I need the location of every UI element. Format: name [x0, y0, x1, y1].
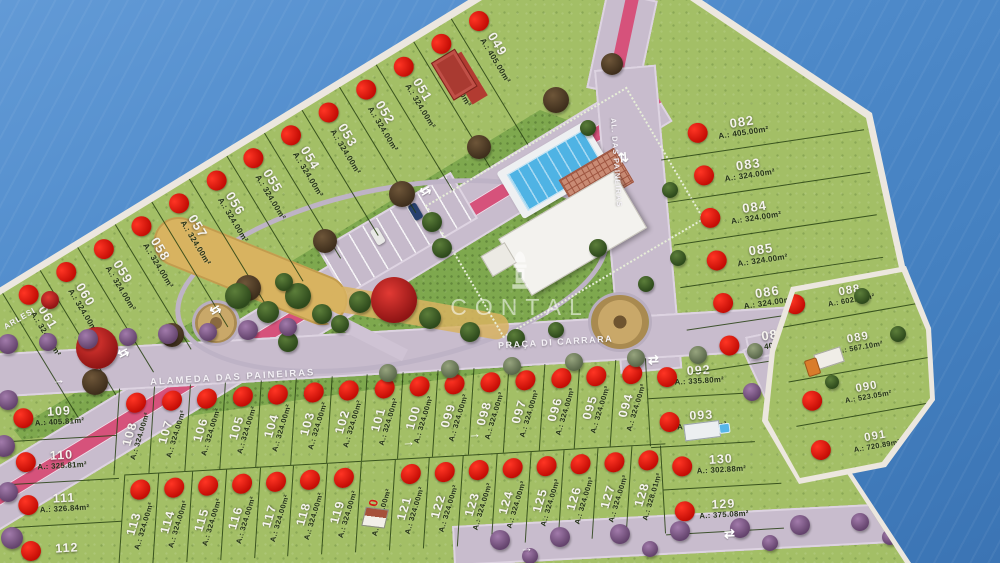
tree-icon [662, 182, 678, 198]
sold-marker-dot [130, 479, 151, 500]
sold-marker-dot [621, 363, 642, 384]
tree-icon [670, 521, 690, 541]
lot-label: 130A.: 302.88m² [696, 452, 747, 476]
tree-icon [1, 527, 23, 549]
tree-icon [41, 291, 59, 309]
sold-marker-dot [465, 8, 492, 35]
house-car-icon [361, 507, 389, 529]
lot-106: 106A.: 324.00m² [184, 383, 225, 472]
sold-marker-dot [240, 144, 267, 171]
tree-icon [743, 383, 761, 401]
road-arrow-icon: → [520, 540, 534, 556]
sold-marker-dot [232, 473, 253, 494]
sold-marker-dot [198, 475, 219, 496]
lot-label: 099A.: 324.00m² [436, 391, 471, 442]
lot-area: A.: 567.10m² [836, 340, 884, 356]
sold-marker-dot [203, 167, 230, 194]
lot-label: 083A.: 324.00m² [722, 154, 775, 183]
lot-label: 117A.: 324.00m² [256, 491, 291, 542]
lot-label: 112 [55, 542, 79, 556]
lot-105: 105A.: 324.00m² [220, 381, 261, 470]
sold-marker-dot [801, 389, 824, 412]
sold-marker-dot [13, 408, 34, 429]
lot-label: 109A.: 405.81m² [34, 404, 85, 428]
sold-marker-dot [164, 477, 185, 498]
tree-icon [670, 250, 686, 266]
tree-icon [379, 364, 397, 382]
tree-icon [747, 343, 763, 359]
road-arrow-icon: → [51, 371, 65, 387]
sold-marker-dot [161, 390, 182, 411]
lot-label: 106A.: 324.00m² [188, 405, 223, 456]
lot-label: 097A.: 324.00m² [506, 387, 541, 438]
tree-icon [257, 301, 279, 323]
lot-094: 094A.: 324.00m² [609, 358, 650, 447]
lot-093: 093A.: 344.56m² [648, 393, 755, 448]
lot-area: A.: 325.81m² [37, 461, 87, 472]
lot-099: 099A.: 324.00m² [432, 368, 473, 457]
lot-label: 108A.: 324.00m² [117, 410, 152, 461]
sold-marker-dot [502, 458, 523, 479]
sold-marker-dot [333, 467, 354, 488]
house-pool-icon [683, 420, 721, 441]
lot-128: 128A.: 328.01m² [626, 444, 666, 536]
lot-label: 118A.: 324.00m² [290, 489, 325, 540]
lot-area: A.: 405.81m² [35, 417, 85, 428]
tree-icon [762, 535, 778, 551]
sold-marker-dot [265, 471, 286, 492]
sold-marker-dot [303, 382, 324, 403]
sold-marker-dot [18, 495, 39, 516]
sold-marker-dot [809, 438, 832, 461]
lot-area: A.: 324.00m² [737, 253, 788, 269]
lot-number: 112 [55, 542, 79, 556]
road-arrow-icon: → [402, 434, 416, 450]
sold-marker-dot [586, 366, 607, 387]
sold-marker-dot [674, 501, 695, 522]
lot-label: 119A.: 324.00m² [324, 487, 359, 538]
tree-icon [851, 513, 869, 531]
sold-marker-dot [409, 376, 430, 397]
road-arrow-icon: → [468, 426, 482, 442]
sold-marker-dot [551, 368, 572, 389]
lot-label: 116A.: 324.00m² [223, 493, 258, 544]
lot-label: 095A.: 324.00m² [577, 383, 612, 434]
lot-area: A.: 335.80m² [674, 376, 724, 387]
sold-marker-dot [267, 384, 288, 405]
sold-marker-dot [672, 456, 693, 477]
lot-097: 097A.: 324.00m² [503, 364, 544, 453]
tree-icon [389, 181, 415, 207]
tree-icon [279, 318, 297, 336]
lot-103: 103A.: 324.00m² [291, 376, 332, 465]
road-arrow-icon: ⇄ [648, 352, 660, 369]
tree-icon [39, 333, 57, 351]
sold-marker-dot [338, 380, 359, 401]
lot-label: 090A.: 523.05m² [842, 377, 892, 405]
lot-102: 102A.: 324.00m² [326, 374, 367, 463]
tree-icon [550, 527, 570, 547]
house-truck-icon [813, 346, 845, 370]
tree-icon [419, 307, 441, 329]
lot-096: 096A.: 324.00m² [538, 362, 579, 451]
sold-marker-dot [165, 190, 192, 217]
sold-marker-dot [232, 386, 253, 407]
sold-marker-dot [128, 213, 155, 240]
road-arrow-icon: ⇄ [724, 526, 736, 543]
tree-icon [790, 515, 810, 535]
sold-marker-dot [699, 207, 722, 230]
lot-130: 130A.: 302.88m² [661, 439, 781, 491]
sold-marker-dot [126, 392, 147, 413]
lot-label: 128A.: 328.01m² [628, 469, 663, 520]
lot-area: A.: 405.00m² [718, 125, 769, 141]
lot-label: 102A.: 324.00m² [329, 397, 364, 448]
master-plan-photo: 061A.: 324.00m²060A.: 324.00m²059A.: 324… [0, 0, 1000, 563]
lot-label: 096A.: 324.00m² [542, 385, 577, 436]
sold-marker-dot [90, 235, 117, 262]
lot-label: 103A.: 324.00m² [294, 399, 329, 450]
sold-marker-dot [515, 370, 536, 391]
tree-icon [82, 369, 108, 395]
lot-area: A.: 324.00m² [724, 168, 775, 184]
sold-marker-dot [390, 53, 417, 80]
tree-icon [589, 239, 607, 257]
lot-label: 110A.: 325.81m² [36, 448, 87, 472]
lot-label: 113A.: 324.00m² [121, 499, 156, 550]
tree-icon [313, 229, 337, 253]
lot-label: 126A.: 324.00m² [561, 473, 596, 524]
tree-icon [467, 135, 491, 159]
sold-marker-dot [705, 249, 728, 272]
lot-110: 110A.: 325.81m² [5, 436, 119, 485]
sold-marker-dot [536, 456, 557, 477]
sold-marker-dot [712, 292, 735, 315]
sold-marker-dot [15, 452, 36, 473]
lot-109: 109A.: 405.81m² [2, 391, 116, 442]
tree-icon [825, 375, 839, 389]
tree-icon [158, 324, 178, 344]
lot-101: 101A.: 324.00m² [361, 372, 402, 461]
lot-label: 124A.: 324.00m² [493, 477, 528, 528]
sold-marker-dot [352, 76, 379, 103]
lot-label: 082A.: 405.00m² [716, 112, 769, 141]
tree-icon [911, 510, 929, 528]
sold-marker-dot [53, 258, 80, 285]
lot-label: 107A.: 324.00m² [152, 408, 187, 459]
lot-label: 085A.: 324.00m² [735, 239, 788, 268]
tree-icon [422, 212, 442, 232]
tree-icon [610, 524, 630, 544]
tree-icon [312, 304, 332, 324]
tree-icon [642, 541, 658, 557]
tree-icon [238, 320, 258, 340]
lot-label: 094A.: 324.00m² [613, 381, 648, 432]
tree-icon [331, 315, 349, 333]
lot-108: 108A.: 324.00m² [113, 387, 154, 476]
tree-icon [432, 238, 452, 258]
lot-label: 114A.: 324.00m² [155, 497, 190, 548]
lot-095: 095A.: 324.00m² [574, 360, 615, 449]
lot-label: 122A.: 324.00m² [426, 481, 461, 532]
tree-icon [275, 273, 293, 291]
lot-block-end-2: 130A.: 302.88m²129A.: 375.08m² [660, 439, 784, 534]
sold-marker-dot [20, 540, 41, 561]
tree-icon [580, 120, 596, 136]
tree-icon [503, 357, 521, 375]
lot-area: A.: 326.84m² [40, 504, 90, 515]
tree-icon [349, 291, 371, 313]
tree-icon [441, 360, 459, 378]
sold-marker-dot [570, 454, 591, 475]
tree-icon [199, 323, 217, 341]
lot-label: 105A.: 324.00m² [223, 403, 258, 454]
lot-label: 121A.: 324.00m² [392, 483, 427, 534]
lot-label: 111A.: 326.84m² [39, 491, 90, 515]
tree-icon [119, 328, 137, 346]
sold-marker-dot [401, 463, 422, 484]
lot-label: 127A.: 324.00m² [595, 471, 630, 522]
sold-marker-dot [637, 450, 658, 471]
tree-icon [627, 349, 645, 367]
sold-marker-dot [604, 452, 625, 473]
lot-111: 111A.: 326.84m² [7, 479, 121, 528]
lot-107: 107A.: 324.00m² [149, 385, 190, 474]
sold-marker-dot [693, 164, 716, 187]
tree-icon [78, 329, 98, 349]
sold-marker-dot [468, 459, 489, 480]
tree-icon [490, 530, 510, 550]
sold-marker-dot [196, 388, 217, 409]
lot-label: 104A.: 324.00m² [259, 401, 294, 452]
sold-marker-dot [315, 99, 342, 126]
lot-area: A.: 523.05m² [844, 389, 892, 405]
tree-icon [371, 277, 417, 323]
tree-icon [689, 346, 707, 364]
lot-098: 098A.: 324.00m² [468, 366, 509, 455]
sold-marker-dot [15, 281, 42, 308]
tree-icon [543, 87, 569, 113]
lot-area: A.: 302.88m² [697, 465, 747, 476]
lot-label: 125A.: 324.00m² [527, 475, 562, 526]
sold-marker-dot [299, 469, 320, 490]
lot-label: 115A.: 324.00m² [189, 495, 224, 546]
tree-icon [225, 283, 251, 309]
lot-label: 123A.: 324.00m² [459, 479, 494, 530]
lot-label: 101A.: 324.00m² [365, 395, 400, 446]
tree-icon [890, 326, 906, 342]
lot-area: A.: 324.00m² [731, 210, 782, 226]
tree-icon [854, 288, 870, 304]
lot-104: 104A.: 324.00m² [255, 378, 296, 467]
sold-marker-dot [434, 461, 455, 482]
sold-marker-dot [686, 121, 709, 144]
tree-icon [601, 53, 623, 75]
lot-label: 084A.: 324.00m² [729, 197, 782, 226]
sold-marker-dot [718, 334, 741, 357]
sold-marker-dot [278, 121, 305, 148]
tree-icon [565, 353, 583, 371]
road-arrow-icon: ⇅ [617, 150, 629, 167]
lot-112: 112 [10, 522, 125, 563]
sold-marker-dot [480, 372, 501, 393]
tree-icon [638, 276, 654, 292]
tree-icon [460, 322, 480, 342]
